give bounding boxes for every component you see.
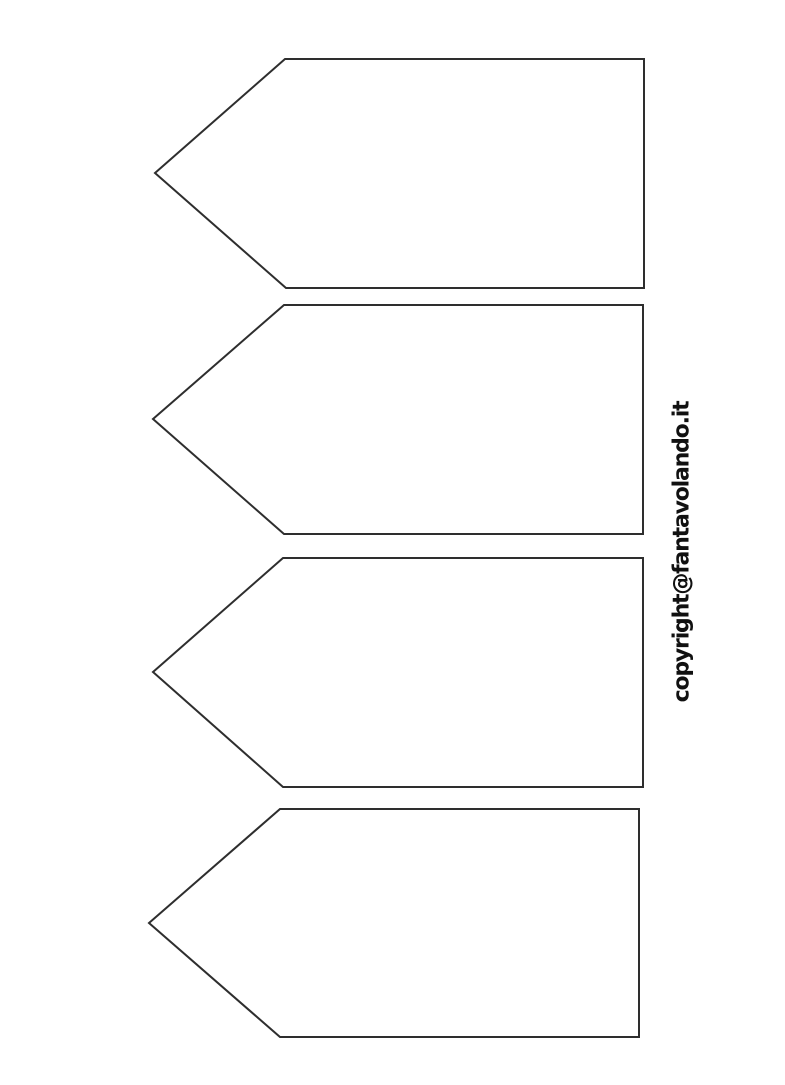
blank-tag-shape-3 [153, 558, 643, 787]
blank-tag-shape-1 [155, 59, 644, 288]
blank-tag-shape-2 [153, 305, 643, 534]
tag-shapes-canvas [0, 0, 785, 1085]
printable-template-page: copyright@fantavolando.it [0, 0, 785, 1085]
blank-tag-shape-4 [149, 809, 639, 1037]
copyright-watermark: copyright@fantavolando.it [670, 402, 695, 703]
